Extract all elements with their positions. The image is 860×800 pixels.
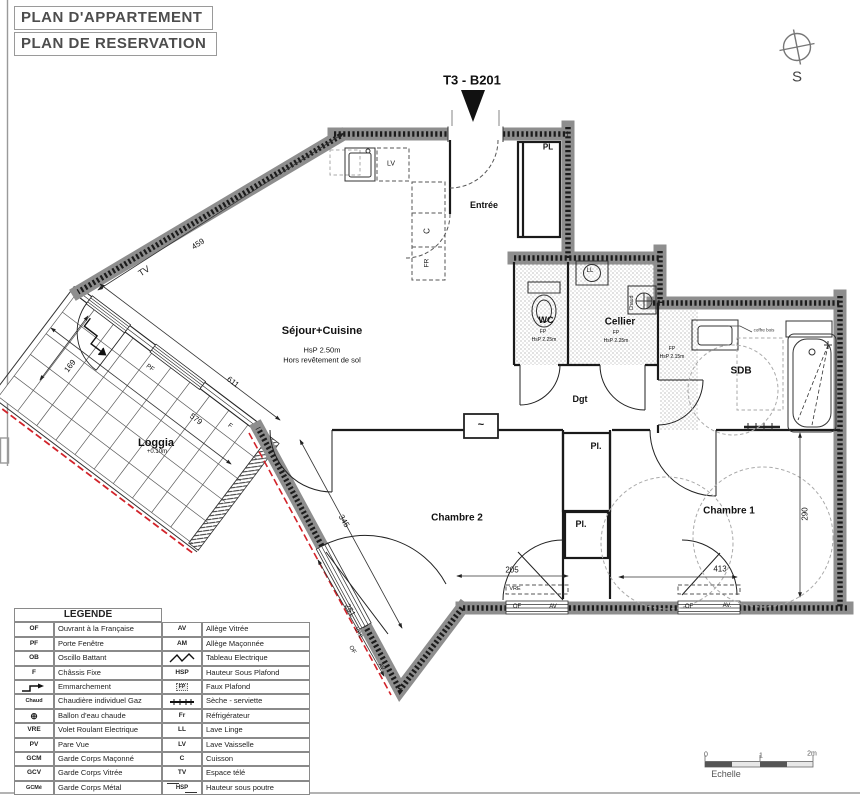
title-plan-reservation: PLAN DE RESERVATION xyxy=(14,32,217,56)
legend-label: Ouvrant à la Française xyxy=(54,622,162,636)
w2-vre: VRE xyxy=(509,586,520,592)
equip-chaud: Chaud xyxy=(629,296,635,311)
legend-label: Garde Corps Maçonné xyxy=(54,752,162,766)
legend-label: Garde Corps Vitrée xyxy=(54,766,162,780)
hauteur-sous-poutre-icon: HSP xyxy=(173,782,191,794)
legend-abbr-vre: VRE xyxy=(14,723,54,737)
legend-label: Allège Vitrée xyxy=(202,622,310,636)
room-sejour: Séjour+Cuisine xyxy=(282,325,362,337)
w2-of: OF xyxy=(513,604,521,610)
legend-label: Porte Fenêtre xyxy=(54,637,162,651)
room-sdb: SDB xyxy=(730,366,751,377)
legend-abbr-am: AM xyxy=(162,637,202,651)
room-entree: Entrée xyxy=(470,200,498,210)
legend-label: Chaudière individuel Gaz xyxy=(54,694,162,708)
legend-label: Cuisson xyxy=(202,752,310,766)
room-wc: WC xyxy=(539,315,554,325)
cellier-hsp: HsP 2.25m xyxy=(604,338,629,344)
ballon-eau-chaude-icon: ⊕ xyxy=(14,709,54,723)
legend-label: Ballon d'eau chaude xyxy=(54,709,162,723)
scale-tick-0: 0 xyxy=(704,752,708,759)
wc-fp: FP xyxy=(540,329,546,335)
legend-abbr-ll: LL xyxy=(162,723,202,737)
w1-av: AV. xyxy=(723,603,732,609)
entrance-door-swing xyxy=(450,140,498,188)
legend-label: Sèche - serviette xyxy=(202,694,310,708)
faux-plafond-icon: FP xyxy=(176,683,188,691)
equip-c: C xyxy=(423,228,432,234)
compass-icon xyxy=(780,30,815,65)
w2-av: AV xyxy=(549,604,557,610)
floor-plan-sheet: PLAN D'APPARTEMENT PLAN DE RESERVATION T… xyxy=(0,0,860,800)
legend-abbr-pf: PF xyxy=(14,637,54,651)
legend-abbr-tv: TV xyxy=(162,766,202,780)
sejour-hsp: HsP 2.50m xyxy=(304,346,341,355)
legend-icon-cell: HSP xyxy=(162,781,202,795)
legend-abbr-hsp: HSP xyxy=(162,666,202,680)
legend-abbr-gcv: GCV xyxy=(14,766,54,780)
legend-abbr-av: AV xyxy=(162,622,202,636)
legend-abbr-gcm: GCM xyxy=(14,752,54,766)
closet-pl-entree: PL xyxy=(543,143,553,152)
w1-of: OF xyxy=(685,604,693,610)
bathtub xyxy=(788,334,836,432)
legend-abbr-fr: Fr xyxy=(162,709,202,723)
cellier-fp: FP xyxy=(613,330,619,336)
tableau-electrique-icon xyxy=(168,653,196,664)
couloir-hsp: HsP 2.15m xyxy=(660,354,685,360)
legend-abbr-chaud: Chaud xyxy=(14,694,54,708)
scale-tick-1: 1 xyxy=(759,753,763,760)
legend-label: Garde Corps Métal xyxy=(54,781,162,795)
legend-title: LEGENDE xyxy=(14,608,162,622)
washbasin xyxy=(692,320,738,350)
legend-label: Hauteur sous poutre xyxy=(202,781,310,795)
legend-label: Tableau Electrique xyxy=(202,651,310,665)
dim-290: 290 xyxy=(801,507,810,520)
equip-ll: LL xyxy=(587,268,594,274)
legend-label: Lave Vaisselle xyxy=(202,738,310,752)
title-plan-appartement: PLAN D'APPARTEMENT xyxy=(14,6,213,30)
loggia-deck xyxy=(0,284,282,555)
room-chambre2: Chambre 2 xyxy=(431,513,483,524)
wc-hsp: HsP 2.25m xyxy=(532,337,557,343)
dim-205: 205 xyxy=(505,566,518,575)
legend-label: Lave Linge xyxy=(202,723,310,737)
legend-abbr-c: C xyxy=(162,752,202,766)
legend-label: Emmarchement xyxy=(54,680,162,694)
room-dgt: Dgt xyxy=(573,394,588,404)
unit-label: T3 - B201 xyxy=(443,73,501,88)
legend-abbr-ob: OB xyxy=(14,651,54,665)
equip-fr: FR xyxy=(424,259,431,268)
legend-label: Faux Plafond xyxy=(202,680,310,694)
legend-icon-cell: FP xyxy=(162,680,202,694)
legend-abbr-of: OF xyxy=(14,622,54,636)
dim-413: 413 xyxy=(713,565,726,574)
legend-abbr-f: F xyxy=(14,666,54,680)
room-chambre1: Chambre 1 xyxy=(703,506,755,517)
legend-table: LEGENDE OF Ouvrant à la Française AV All… xyxy=(14,608,310,795)
legend-label: Allège Maçonnée xyxy=(202,637,310,651)
closet-pl1: Pl. xyxy=(590,441,601,451)
room-cellier: Cellier xyxy=(605,317,636,328)
interior-walls xyxy=(332,140,840,599)
entrance-arrow-icon xyxy=(461,90,485,122)
couloir-fp: FP xyxy=(669,346,675,352)
sejour-note: Hors revêtement de sol xyxy=(283,356,361,365)
room-loggia: Loggia xyxy=(138,437,174,449)
legend-label: Hauteur Sous Plafond xyxy=(202,666,310,680)
legend-label: Pare Vue xyxy=(54,738,162,752)
closet-pl2: Pl. xyxy=(575,519,586,529)
scale-tick-2m: 2m xyxy=(807,751,817,758)
legend-icon-cell xyxy=(162,694,202,708)
legend-label: Oscillo Battant xyxy=(54,651,162,665)
legend-abbr-pv: PV xyxy=(14,738,54,752)
equip-lv: LV xyxy=(387,161,395,168)
legend-label: Réfrigérateur xyxy=(202,709,310,723)
chambre1-turning-circle-2 xyxy=(693,467,833,607)
tableau-electrique-symbol: ~ xyxy=(478,419,484,431)
emmarchement-icon xyxy=(20,682,48,693)
legend-icon-cell xyxy=(14,680,54,694)
legend-label: Volet Roulant Electrique xyxy=(54,723,162,737)
coffre-bois-label: coffre bois xyxy=(754,328,775,333)
legend-label: Châssis Fixe xyxy=(54,666,162,680)
scale-caption: Echelle xyxy=(711,769,741,779)
legend-abbr-lv: LV xyxy=(162,738,202,752)
legend-abbr-gcme: GCMé xyxy=(14,781,54,795)
legend-icon-cell xyxy=(162,651,202,665)
compass-south-label: S xyxy=(792,69,802,86)
loggia-level: +0.10m xyxy=(147,449,167,455)
chambre1-turning-circle xyxy=(601,477,733,609)
seche-serviette-icon xyxy=(168,697,196,707)
legend-label: Espace télé xyxy=(202,766,310,780)
entree-sejour-door-swing xyxy=(406,214,450,258)
fixtures xyxy=(330,148,836,609)
